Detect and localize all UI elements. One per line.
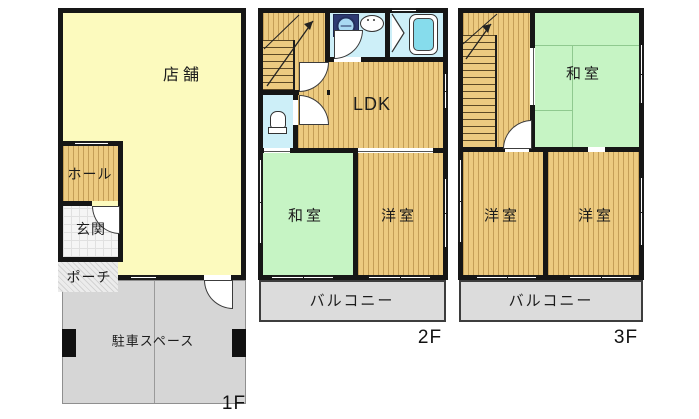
parking-pillar-right (232, 329, 246, 357)
room-label-youshitsu3f-left: 洋室 (484, 209, 520, 224)
wall (290, 148, 358, 153)
wall (118, 275, 131, 280)
wall (156, 275, 204, 280)
tatami-line (535, 45, 639, 46)
window (258, 160, 263, 243)
wall (361, 57, 448, 62)
room-label-genkan: 玄関 (76, 222, 106, 236)
window (443, 179, 448, 247)
wall (458, 8, 644, 13)
room-label-washitsu3f: 和室 (566, 67, 602, 82)
wall (325, 8, 330, 62)
wall (58, 8, 63, 262)
wall (293, 90, 298, 100)
room-label-parking: 駐車スペース (112, 335, 194, 348)
window (639, 178, 644, 245)
wall (118, 141, 123, 262)
wall (530, 8, 535, 48)
sink-icon (360, 15, 384, 32)
window (131, 275, 156, 280)
wall (529, 147, 588, 152)
window (75, 141, 108, 146)
wall (639, 8, 644, 45)
sliding-door (358, 148, 433, 153)
wall (58, 201, 92, 206)
wall (443, 8, 448, 74)
room-label-hall: ホール (68, 167, 113, 181)
sliding-door (264, 148, 290, 153)
wall (458, 147, 505, 152)
wall (241, 8, 246, 280)
door-opening (293, 100, 298, 125)
window (392, 8, 416, 13)
floor-tag-2f: 2F (418, 327, 442, 349)
bathtub-icon (409, 14, 438, 55)
window (443, 74, 448, 108)
floor-tag-3f: 3F (614, 327, 638, 349)
wall (231, 275, 246, 280)
sliding-door (530, 48, 535, 105)
bath-folding-door-icon (391, 14, 407, 53)
wall (58, 8, 246, 13)
parking-pillar-left (62, 329, 76, 357)
wall (639, 103, 644, 178)
wall (458, 8, 463, 160)
window (639, 45, 644, 103)
room-label-ldk: LDK (353, 95, 391, 113)
wall (543, 147, 548, 280)
floor-1f: 店舗 ホール 玄関 ポーチ 駐車スペース 1F (0, 0, 260, 419)
wall (443, 108, 448, 179)
balcony-label-3f: バルコニー (509, 294, 594, 309)
wall (605, 147, 644, 152)
balcony-label-2f: バルコニー (310, 294, 395, 309)
wall (385, 8, 390, 62)
stairs-up-arrow-icon (463, 13, 519, 63)
wall (327, 90, 330, 95)
door-opening (588, 147, 605, 152)
window (458, 160, 463, 242)
room-label-youshitsu3f-right: 洋室 (578, 209, 614, 224)
tatami-line (572, 45, 573, 147)
floor-tag-1f: 1F (222, 393, 246, 415)
tatami-line (535, 110, 572, 111)
room-label-youshitsu2f: 洋室 (381, 209, 417, 224)
wall (58, 141, 75, 146)
wall (433, 148, 448, 153)
wall (353, 148, 358, 280)
room-label-shop: 店舗 (163, 68, 203, 84)
room-label-porch: ポーチ (67, 270, 112, 284)
wall (258, 8, 263, 160)
floorplan-canvas: 店舗 ホール 玄関 ポーチ 駐車スペース 1F (0, 0, 699, 419)
room-label-washitsu2f: 和室 (288, 209, 324, 224)
